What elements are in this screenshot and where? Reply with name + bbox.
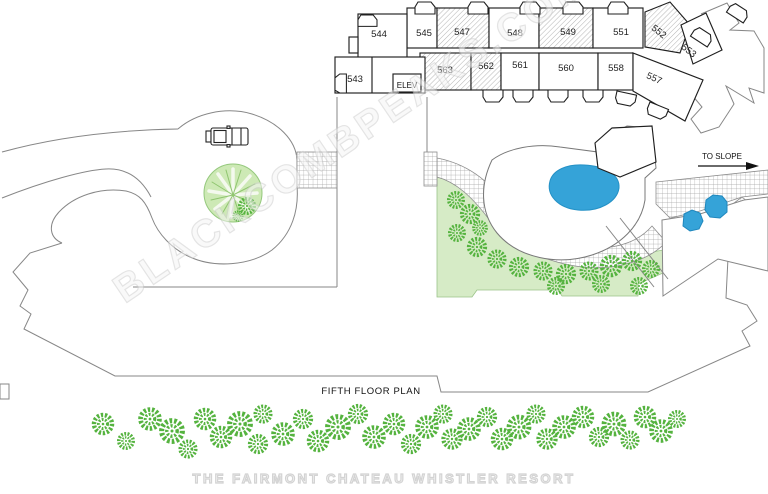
tree-icon [538,430,555,447]
tree-icon [196,410,214,428]
hot-tub-small [683,210,703,231]
tree-icon [670,412,684,426]
tree-icon [94,415,112,433]
tree-icon [435,406,450,421]
edge-stub [0,384,9,399]
floor-plan-svg: 544 545 547 548 549 551 552 553 543 563 … [0,0,768,494]
tree-icon [162,421,183,442]
tree-icon [479,409,495,425]
tree-icon [636,408,654,426]
hot-tub-large [705,195,727,218]
plan-title: FIFTH FLOOR PLAN [321,386,420,397]
tree-icon [274,425,293,444]
to-slope-label: TO SLOPE [702,152,742,161]
road-edge-upper [2,129,178,152]
tree-icon [230,414,251,435]
label-562: 562 [478,61,494,72]
tree-icon [180,441,195,456]
tree-icon [255,406,270,421]
tree-icon [350,406,366,422]
to-slope-arrow-icon [698,162,759,170]
tree-icon [328,417,349,438]
tree-icon [509,417,529,437]
tree-icon [652,422,671,441]
tree-icon [555,418,574,437]
label-558: 558 [608,63,624,74]
tree-icon [528,406,543,421]
road-edge-middle [2,169,151,198]
room-561 [501,53,539,90]
label-547: 547 [454,27,470,38]
label-563: 563 [437,65,453,76]
tree-icon [250,436,266,452]
tree-icon [212,428,230,446]
room-544-annex [349,37,358,53]
label-551: 551 [613,27,629,38]
tree-icon [403,436,419,452]
site-plan-page: THE FAIRMONT CHATEAU WHISTLER RESORT [0,0,768,494]
tree-icon [622,432,637,447]
label-548: 548 [507,28,523,39]
parked-car [206,126,248,147]
tree-icon [460,420,479,439]
tree-icon [418,418,437,437]
tree-icon [574,408,592,426]
tree-icon [309,432,327,450]
tree-icon [295,411,311,427]
tree-icon [141,410,160,429]
tree-icon [365,428,384,447]
courtyard [297,126,768,297]
label-543: 543 [347,74,363,85]
tree-icon [493,430,511,448]
walkway-connector [297,152,337,188]
walkway-stub-left [424,152,437,186]
label-545: 545 [416,28,432,39]
label-560: 560 [558,63,574,74]
tree-icon [119,434,133,448]
label-561: 561 [512,60,528,71]
tree-icon [604,414,624,434]
driveway-island [204,164,262,222]
tree-icon [385,415,403,433]
elevator-label: ELEV [397,81,418,90]
to-slope-annotation: TO SLOPE [698,152,759,170]
label-549: 549 [560,27,576,38]
label-544: 544 [371,29,387,40]
tree-row [94,406,684,457]
